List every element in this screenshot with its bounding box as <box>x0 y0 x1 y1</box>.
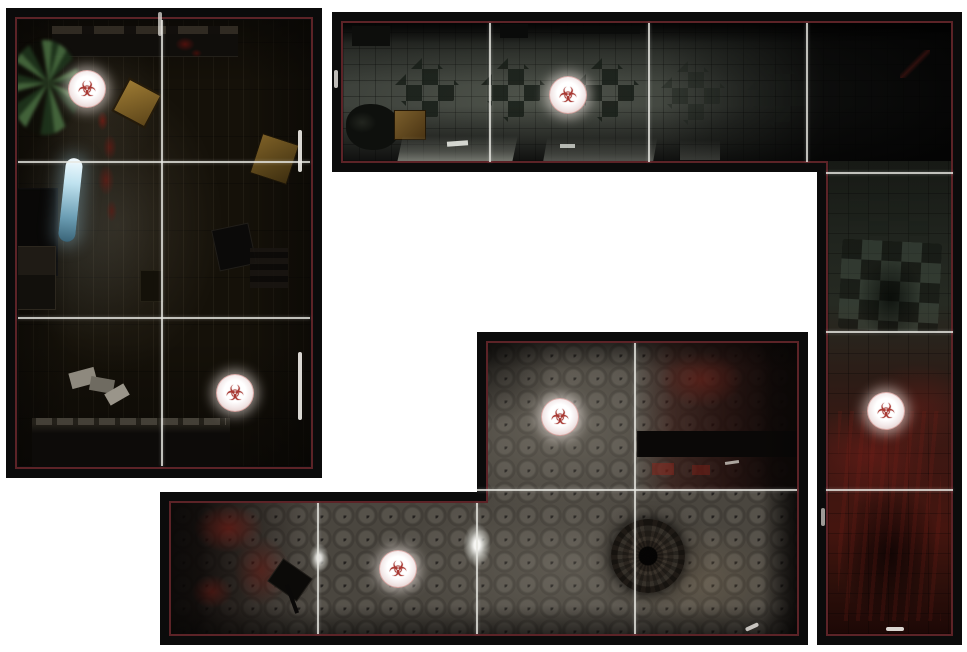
map-tiles-photo: ☣ ☣ <box>0 0 967 652</box>
door-marker <box>821 508 825 526</box>
shelf <box>250 248 288 288</box>
grid-line-horizontal <box>826 489 953 491</box>
doorway-light <box>680 140 720 160</box>
sofa-slats <box>36 418 226 425</box>
door-marker <box>334 70 338 88</box>
crates <box>18 246 56 310</box>
ceiling-pipe <box>560 26 640 34</box>
corridor-floor <box>343 23 951 161</box>
grid-line-vertical <box>489 23 491 162</box>
door-marker <box>298 352 302 420</box>
biohazard-token: ☣ <box>379 550 417 588</box>
grid-line-horizontal <box>18 317 310 319</box>
sofa-row <box>32 418 230 466</box>
grid-line-horizontal <box>826 172 953 174</box>
glowing-screen <box>58 157 84 242</box>
biohazard-icon: ☣ <box>559 85 578 106</box>
grid-line-horizontal <box>18 161 310 163</box>
room-tile: ☣ ☣ <box>6 8 322 478</box>
checker-tiles <box>656 56 730 130</box>
door-marker <box>298 130 302 172</box>
door-marker <box>158 12 162 36</box>
checker-tiles <box>742 58 816 132</box>
blood-streak <box>900 50 930 78</box>
shadow-figure <box>858 256 923 341</box>
ceiling-shadow <box>343 23 951 43</box>
blood-streaks <box>838 411 941 621</box>
light-debris <box>560 144 575 148</box>
checker-tiles <box>476 53 550 127</box>
ceiling-vent <box>500 24 528 38</box>
door-marker <box>886 627 904 631</box>
ceiling-box <box>352 26 390 46</box>
blood-splatter <box>168 28 206 64</box>
biohazard-icon: ☣ <box>226 383 245 404</box>
biohazard-icon: ☣ <box>877 401 896 422</box>
grid-line-vertical <box>806 23 808 162</box>
biohazard-icon: ☣ <box>389 559 408 580</box>
biohazard-token: ☣ <box>216 374 254 412</box>
grid-line-vertical <box>317 503 319 634</box>
grid-line-vertical <box>161 20 163 466</box>
blood-trail <box>90 112 126 222</box>
doorway-light <box>543 138 658 164</box>
checker-tiles <box>848 181 928 236</box>
biohazard-token: ☣ <box>541 398 579 436</box>
cabinet-row <box>52 26 238 57</box>
grid-line-vertical <box>648 23 650 162</box>
grid-line-horizontal <box>826 331 953 333</box>
biohazard-icon: ☣ <box>78 79 97 100</box>
biohazard-icon: ☣ <box>551 407 570 428</box>
wooden-chair <box>249 133 299 185</box>
room-floor-art <box>18 20 310 466</box>
doorway-light <box>397 136 518 162</box>
grid-line-vertical <box>476 503 478 634</box>
biohazard-token: ☣ <box>549 76 587 114</box>
trash-bags <box>346 104 400 150</box>
grid-line-horizontal <box>477 489 797 491</box>
biohazard-token: ☣ <box>68 70 106 108</box>
biohazard-token: ☣ <box>867 392 905 430</box>
scattered-papers <box>70 370 126 406</box>
